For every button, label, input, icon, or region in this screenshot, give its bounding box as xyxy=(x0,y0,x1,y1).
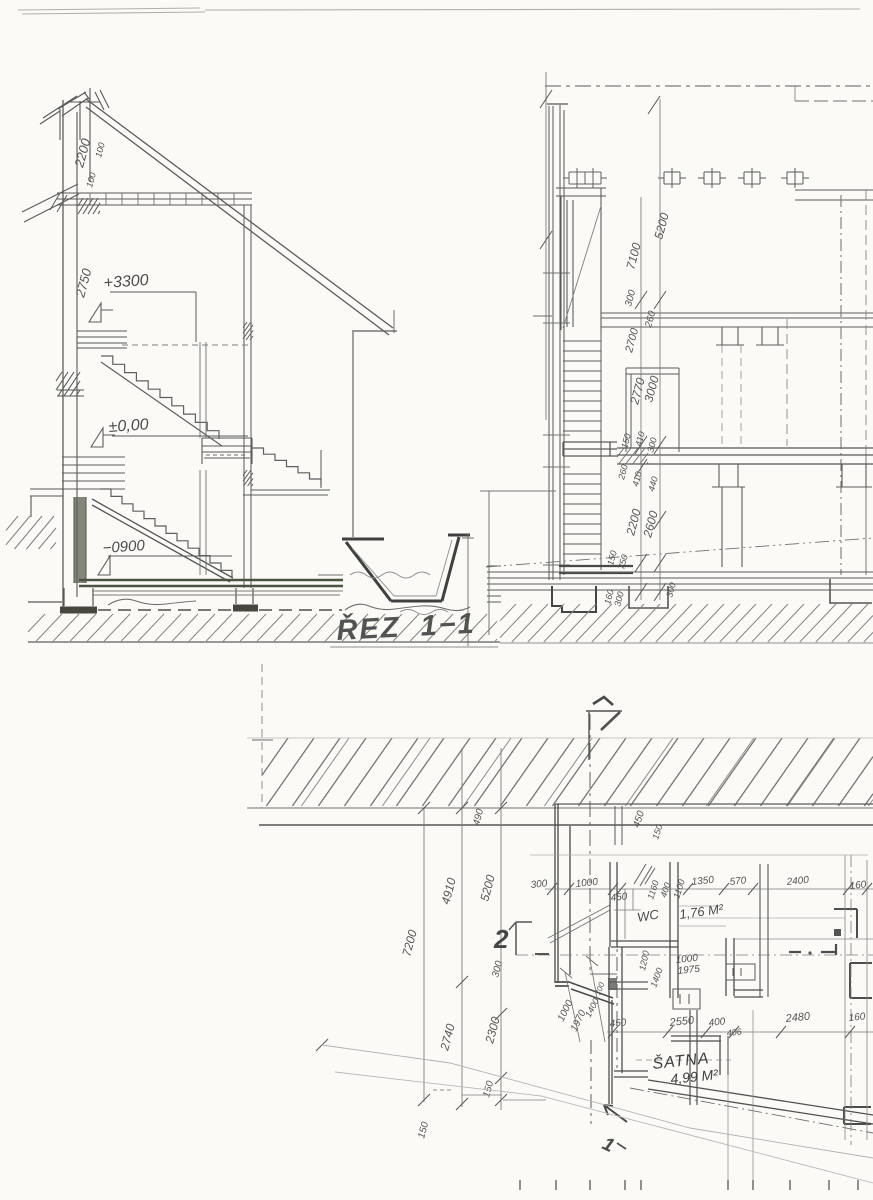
svg-text:±0,00: ±0,00 xyxy=(108,416,149,436)
svg-text:400: 400 xyxy=(708,1016,726,1029)
svg-text:2: 2 xyxy=(493,924,509,954)
svg-text:406: 406 xyxy=(726,1026,742,1038)
svg-text:450: 450 xyxy=(610,891,628,904)
svg-text:+3300: +3300 xyxy=(103,272,149,292)
svg-text:160: 160 xyxy=(849,879,867,892)
svg-text:570: 570 xyxy=(729,875,747,888)
svg-text:−0900: −0900 xyxy=(102,537,146,557)
svg-text:160: 160 xyxy=(848,1011,866,1024)
svg-text:300: 300 xyxy=(530,878,548,891)
svg-text:450: 450 xyxy=(609,1017,627,1030)
